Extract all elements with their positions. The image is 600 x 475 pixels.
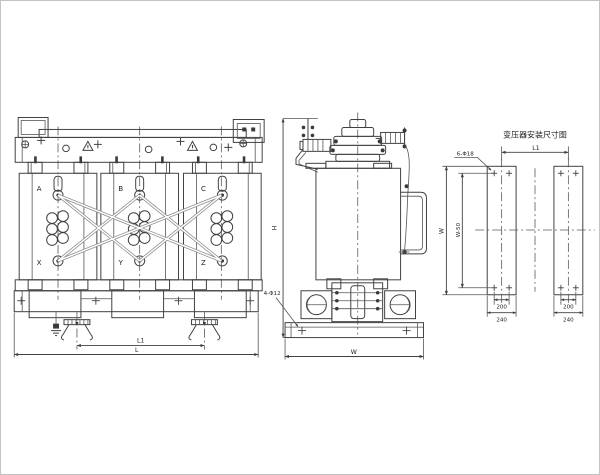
dim-240-right-label: 240 <box>563 318 574 324</box>
dim-l-front: L <box>14 313 258 358</box>
phase-label-c: C <box>201 185 206 193</box>
dim-w-install-label: W <box>438 228 445 234</box>
hole-note-install: 6-Φ18 <box>454 151 491 170</box>
undercarriage <box>285 279 423 338</box>
phase-label-x: X <box>37 259 42 267</box>
bushing-stack <box>306 119 392 168</box>
dim-200-left-label: 200 <box>496 305 507 311</box>
dim-l1-install: L1 <box>502 145 569 160</box>
cable <box>404 143 410 251</box>
handle <box>401 192 427 254</box>
dim-w50-install-label: W-50 <box>456 222 462 237</box>
base-assembly-front <box>14 280 262 318</box>
dim-w-install: W <box>438 166 487 294</box>
engineering-drawing-canvas: A B C X Y Z <box>0 0 600 475</box>
hole-note-install-label: 6-Φ18 <box>457 151 474 157</box>
hole-note-side: 4-Φ12 <box>264 291 298 327</box>
dim-240-left-label: 240 <box>496 318 507 324</box>
install-view-title: 变压器安装尺寸图 <box>503 129 567 139</box>
side-view: H <box>264 113 427 360</box>
front-view: A B C X Y Z <box>14 118 264 358</box>
mounting-rail-right <box>554 158 583 302</box>
install-view: 变压器安装尺寸图 6-Φ18 L1 W <box>438 129 594 323</box>
terminal-box <box>233 119 264 142</box>
dim-l-label: L <box>135 347 139 354</box>
dim-w50-install: W-50 <box>456 173 495 288</box>
ground-symbol <box>51 312 61 336</box>
dim-l1-label: L1 <box>137 338 144 345</box>
beam-symbols <box>22 136 247 163</box>
dim-l1-front: L1 <box>77 338 204 346</box>
right-insulator <box>376 127 410 254</box>
dim-200-right-label: 200 <box>563 305 574 311</box>
dim-l1-install-label: L1 <box>532 145 539 152</box>
phase-label-b: B <box>118 185 123 193</box>
transformer-drawing: A B C X Y Z <box>1 1 599 474</box>
phase-label-z: Z <box>201 259 206 267</box>
hole-note-side-label: 4-Φ12 <box>264 291 281 297</box>
phase-label-y: Y <box>118 259 124 267</box>
dim-h-label: H <box>272 225 279 230</box>
dim-w-side: W <box>285 339 423 360</box>
mounting-rail-left <box>487 158 516 302</box>
tank-body <box>316 168 401 280</box>
coil-limb-c <box>183 162 261 289</box>
phase-label-a: A <box>37 185 42 193</box>
dim-w-side-label: W <box>351 349 357 356</box>
